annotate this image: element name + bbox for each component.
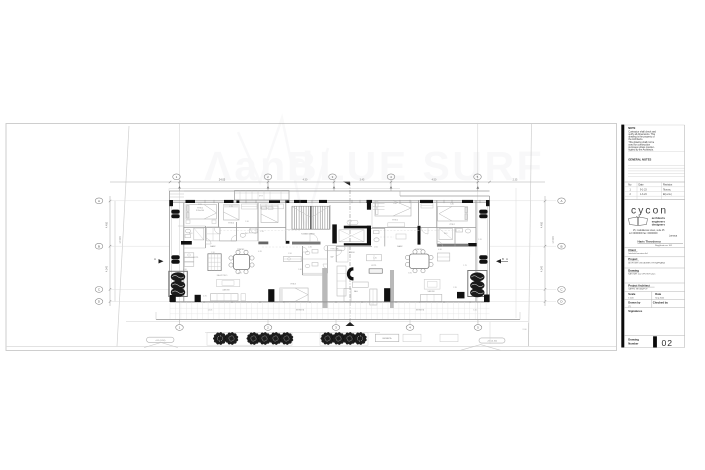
svg-text:4.30: 4.30 — [303, 179, 308, 182]
svg-text:Interhold services ltd: Interhold services ltd — [628, 252, 648, 255]
svg-text:Contractor shall check and: Contractor shall check and — [628, 130, 656, 133]
svg-text:ΚΑΘ.: ΚΑΘ. — [354, 290, 359, 293]
svg-text:+81 (4.50): +81 (4.50) — [155, 340, 165, 342]
svg-text:14.590: 14.590 — [552, 236, 555, 244]
svg-text:14.05: 14.05 — [208, 310, 213, 312]
svg-text:Signatures: Signatures — [628, 309, 642, 313]
svg-text:3.40: 3.40 — [450, 204, 454, 206]
svg-text:W.C.: W.C. — [444, 233, 448, 235]
svg-text:W.C.: W.C. — [189, 233, 193, 235]
svg-text:ΤΡΑΠΕΖ.: ΤΡΑΠΕΖ. — [237, 248, 245, 251]
svg-text:1.35: 1.35 — [260, 231, 264, 233]
svg-text:1.75: 1.75 — [463, 265, 467, 267]
svg-text:2.05: 2.05 — [374, 247, 378, 249]
svg-text:Date: Date — [655, 292, 661, 296]
svg-text:A: A — [506, 257, 508, 261]
svg-text:Larnaca: Larnaca — [669, 234, 678, 237]
svg-text:Number: Number — [628, 342, 638, 346]
svg-text:Haris Theodorou: Haris Theodorou — [638, 240, 661, 244]
svg-text:ΣΑΛΟΝΙ: ΣΑΛΟΝΙ — [222, 289, 229, 292]
svg-text:4.480: 4.480 — [541, 221, 544, 228]
svg-text:ΚΑΘΙΣΤΙΚΟ: ΚΑΘΙΣΤΙΚΟ — [217, 274, 228, 277]
svg-text:ΧΑΡΗΣ ΘΕΟΔΩΡΟΥ: ΧΑΡΗΣ ΘΕΟΔΩΡΟΥ — [628, 288, 648, 291]
svg-text:2.20: 2.20 — [348, 221, 352, 223]
svg-text:verify all dimensions. This: verify all dimensions. This — [628, 133, 655, 136]
svg-text:1:100: 1:100 — [628, 297, 634, 299]
svg-text:25, maddalenas street, suite 4: 25, maddalenas street, suite 45 — [633, 229, 665, 232]
svg-text:used for construction: used for construction — [628, 143, 650, 146]
svg-text:02: 02 — [662, 338, 674, 348]
svg-text:4.340: 4.340 — [541, 265, 544, 272]
svg-text:purposes unless counter-: purposes unless counter- — [628, 146, 654, 149]
svg-text:B: B — [502, 257, 504, 261]
svg-text:the Architects.: the Architects. — [628, 138, 643, 141]
svg-text:1.90: 1.90 — [245, 221, 249, 223]
svg-text:2.90: 2.90 — [288, 253, 292, 255]
svg-text:A: A — [98, 199, 100, 203]
svg-text:2.75: 2.75 — [229, 206, 233, 208]
svg-text:0.90: 0.90 — [183, 269, 187, 271]
svg-text:9-1-23: 9-1-23 — [640, 189, 647, 191]
svg-text:ΚΛΙΜΑΚΟΣΤΑΣΙΟ: ΚΛΙΜΑΚΟΣΤΑΣΙΟ — [301, 233, 315, 236]
svg-text:1-3-24: 1-3-24 — [640, 194, 647, 196]
svg-text:Πισινας: Πισινας — [663, 189, 672, 191]
svg-text:Date: Date — [639, 184, 645, 187]
svg-text:5.10: 5.10 — [473, 310, 477, 312]
svg-text:4.30: 4.30 — [438, 249, 442, 251]
svg-text:ΣΑΛΟΝΙ: ΣΑΛΟΝΙ — [427, 290, 434, 293]
svg-text:ΧΩΡ: ΧΩΡ — [330, 257, 333, 259]
svg-text:4.480: 4.480 — [106, 221, 109, 228]
svg-text:ΥΠΝ.2: ΥΠΝ.2 — [449, 224, 455, 226]
svg-text:NOTE: NOTE — [628, 126, 635, 130]
svg-text:3.45: 3.45 — [360, 179, 365, 182]
svg-text:ΚΟΥΖ.: ΚΟΥΖ. — [193, 257, 199, 259]
svg-text:B: B — [560, 244, 562, 248]
svg-text:4.50: 4.50 — [432, 179, 437, 182]
svg-text:3.95: 3.95 — [408, 273, 412, 275]
svg-text:3.20x4.00: 3.20x4.00 — [196, 210, 204, 212]
svg-text:1.20: 1.20 — [478, 239, 482, 241]
svg-text:4.340: 4.340 — [106, 265, 109, 272]
svg-text:Drawing: Drawing — [628, 338, 639, 342]
svg-text:3.55: 3.55 — [198, 204, 202, 206]
svg-text:Client: Client — [628, 248, 636, 252]
svg-text:Sep 2022: Sep 2022 — [655, 297, 665, 299]
svg-text:+81 (4.50): +81 (4.50) — [487, 341, 497, 343]
svg-text:Drawn by: Drawn by — [628, 301, 641, 305]
svg-text:ΔΙΑΔΡ.: ΔΙΑΔΡ. — [397, 245, 403, 248]
svg-text:ΔΙΟΡΟΦΗ ΟΙΚΟΔΟΜΗ ΣΤΗ ΛΑΡΝΑΚΑ: ΔΙΟΡΟΦΗ ΟΙΚΟΔΟΜΗ ΣΤΗ ΛΑΡΝΑΚΑ — [628, 261, 665, 264]
svg-text:Reg/photo no: 101: Reg/photo no: 101 — [655, 244, 673, 247]
svg-text:14.590: 14.590 — [119, 236, 122, 244]
svg-text:ΒΕΡΑΝΤΑ: ΒΕΡΑΝΤΑ — [416, 309, 425, 312]
svg-text:ΒΕΡΑΝΤΑ: ΒΕΡΑΝΤΑ — [382, 337, 392, 340]
svg-text:4.95: 4.95 — [203, 296, 207, 298]
svg-text:signed by the Architects.: signed by the Architects. — [628, 149, 654, 152]
svg-text:1.45: 1.45 — [373, 258, 377, 260]
svg-text:B: B — [98, 244, 100, 248]
svg-text:ΤΥΠ. ΟΡ.: ΤΥΠ. ΟΡ. — [330, 248, 339, 250]
svg-text:ΑΝΕΛΚ.: ΑΝΕΛΚ. — [349, 251, 356, 254]
svg-text:Scale: Scale — [628, 292, 636, 296]
svg-text:2.35: 2.35 — [453, 287, 457, 289]
svg-text:cycon: cycon — [631, 205, 668, 216]
svg-text:ΚΟΥΖ.: ΚΟΥΖ. — [371, 265, 377, 267]
svg-text:Project Architect: Project Architect — [628, 283, 650, 287]
svg-text:ΔΙΑΔΡ.: ΔΙΑΔΡ. — [210, 245, 216, 248]
svg-text:3.90: 3.90 — [238, 273, 242, 275]
svg-text:Checked by: Checked by — [653, 301, 669, 305]
svg-text:1.80: 1.80 — [298, 269, 302, 271]
svg-text:Drawing: Drawing — [628, 268, 639, 272]
svg-text:2.45: 2.45 — [308, 247, 312, 249]
svg-text:ΤΡΑΠΕΖ.: ΤΡΑΠΕΖ. — [415, 248, 423, 251]
svg-text:3.60: 3.60 — [393, 203, 397, 205]
svg-text:ΒΕΡΑΝΤΑ: ΒΕΡΑΝΤΑ — [296, 309, 305, 312]
svg-text:Project: Project — [628, 257, 637, 261]
svg-text:GENERAL NOTES: GENERAL NOTES — [628, 158, 651, 162]
svg-text:A: A — [560, 199, 562, 203]
svg-text:drawing is the property of: drawing is the property of — [628, 136, 654, 139]
svg-text:2.35: 2.35 — [513, 179, 518, 182]
svg-text:ΥΠΝ.2: ΥΠΝ.2 — [228, 223, 235, 225]
svg-text:Revision: Revision — [663, 184, 673, 187]
svg-text:Εξωστες: Εξωστες — [663, 194, 673, 196]
svg-text:This drawing shall not be: This drawing shall not be — [628, 141, 654, 144]
svg-text:W.C.: W.C. — [245, 233, 249, 235]
svg-text:4.35: 4.35 — [258, 251, 262, 253]
svg-text:ΥΠΝ.1: ΥΠΝ.1 — [392, 220, 399, 222]
svg-text:tel: 00000000 fax: 00000000: tel: 00000000 fax: 00000000 — [629, 232, 658, 235]
svg-text:ΥΠΝ.3: ΥΠΝ.3 — [290, 284, 296, 286]
svg-text:2.10: 2.10 — [211, 252, 215, 254]
svg-text:24.05: 24.05 — [219, 178, 226, 182]
svg-text:ΚΑΤΟΨΗ 1ου ΟΡΟΦΟΥ plan: ΚΑΤΟΨΗ 1ου ΟΡΟΦΟΥ plan — [628, 273, 656, 276]
svg-text:A: A — [154, 257, 156, 261]
svg-text:designers: designers — [652, 223, 666, 227]
